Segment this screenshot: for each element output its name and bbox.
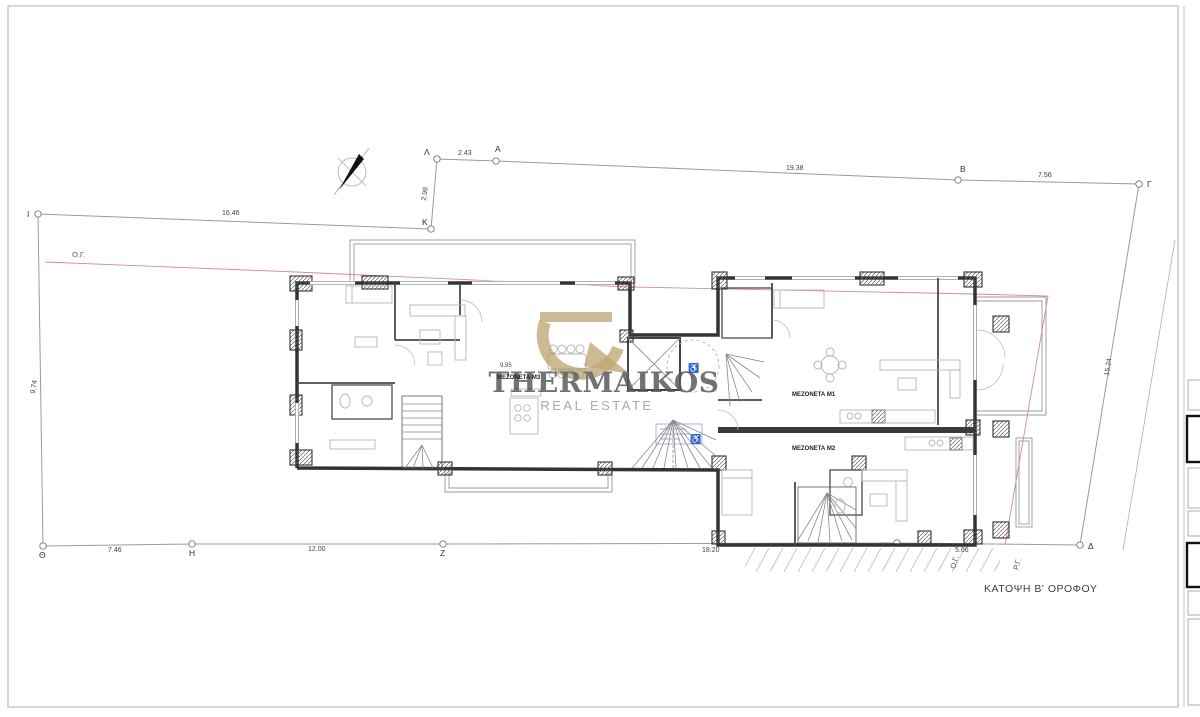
north-arrow-icon — [334, 148, 369, 195]
right-balconies — [977, 297, 1046, 527]
dim-building-front: 18.20 — [702, 547, 720, 554]
vertex-zeta: Z — [440, 548, 445, 558]
dim-m3-width: 9.95 — [500, 363, 512, 369]
dim-eta-theta: 7.46 — [108, 547, 122, 554]
vertex-alpha: A — [495, 144, 501, 154]
vertex-kappa: K — [422, 217, 428, 227]
lower-terrace-parapet — [445, 470, 612, 492]
vertex-beta: B — [960, 164, 966, 174]
dim-kappa-lambda: 2.98 — [421, 187, 430, 202]
balcony-pillars — [993, 316, 1009, 538]
logo-emblem-icon — [540, 312, 630, 374]
dim-iota-kappa: 16.46 — [222, 210, 240, 217]
dim-lambda-alpha: 2.43 — [458, 150, 472, 157]
drawing-title: ΚΑΤΟΨΗ Β' ΟΡΟΦΟΥ — [984, 583, 1097, 595]
vertex-delta: Δ — [1088, 541, 1094, 551]
dim-alpha-beta: 19.38 — [786, 165, 804, 172]
floor-plan-sheet: ♿ ♿ — [0, 0, 1200, 717]
site-boundary — [35, 156, 1175, 550]
dim-delta-offset: 5.66 — [955, 547, 969, 554]
title-block-strip — [1187, 380, 1200, 705]
unit-label-m3: ΜΕΖΟΝΕΤΑ Μ3 — [497, 375, 541, 381]
rg-label: Ρ.Γ. — [1011, 557, 1023, 570]
dimension-labels: 2.43 19.38 7.56 15.24 5.66 18.20 12.00 7… — [30, 150, 1114, 554]
vertex-iota: I — [27, 209, 29, 219]
og-label-left: Ο.Γ. — [72, 250, 86, 259]
watermark-logo: THERMAIKOS REAL ESTATE — [489, 312, 720, 413]
unit-label-m1: ΜΕΖΟΝΕΤΑ Μ1 — [792, 392, 836, 398]
dim-gamma-delta: 15.24 — [1104, 358, 1114, 377]
unit-label-m2: ΜΕΖΟΝΕΤΑ Μ2 — [792, 446, 836, 452]
vertex-gamma: Γ — [1147, 179, 1152, 189]
floor-plan-drawing: ♿ ♿ — [0, 0, 1200, 717]
vertex-eta: H — [189, 548, 195, 558]
dim-theta-iota: 9.74 — [30, 380, 39, 395]
vertex-lambda: Λ — [424, 147, 430, 157]
vertex-theta: Θ — [39, 550, 46, 560]
dim-zeta-eta: 12.00 — [308, 546, 326, 553]
logo-brand-text: THERMAIKOS — [489, 366, 720, 399]
logo-subtitle-text: REAL ESTATE — [540, 398, 653, 413]
dim-beta-gamma: 7.56 — [1038, 172, 1052, 179]
